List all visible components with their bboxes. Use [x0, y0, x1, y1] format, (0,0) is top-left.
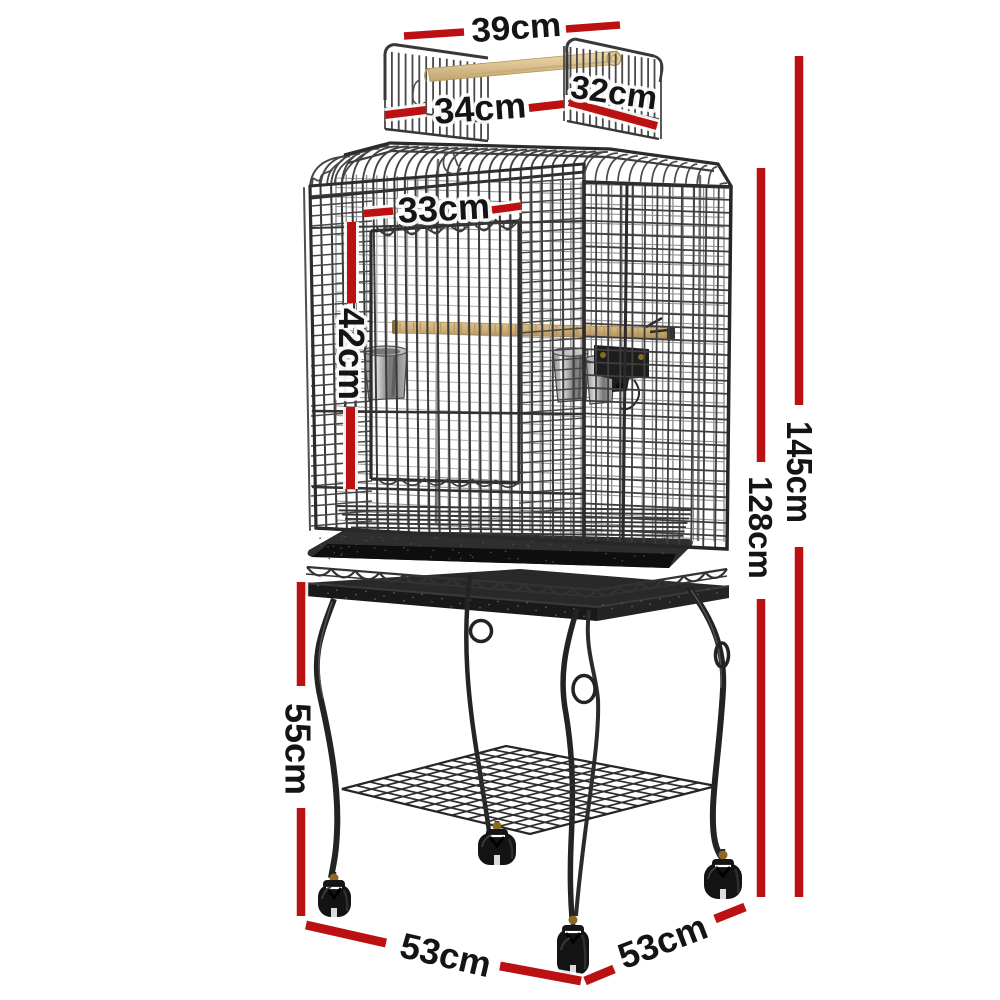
svg-text:39cm: 39cm — [470, 6, 562, 50]
svg-text:34cm: 34cm — [433, 84, 528, 131]
svg-text:55cm: 55cm — [278, 703, 319, 795]
svg-text:145cm: 145cm — [779, 421, 820, 523]
svg-text:128cm: 128cm — [742, 476, 779, 579]
svg-text:33cm: 33cm — [397, 185, 491, 231]
svg-text:42cm: 42cm — [331, 308, 372, 400]
